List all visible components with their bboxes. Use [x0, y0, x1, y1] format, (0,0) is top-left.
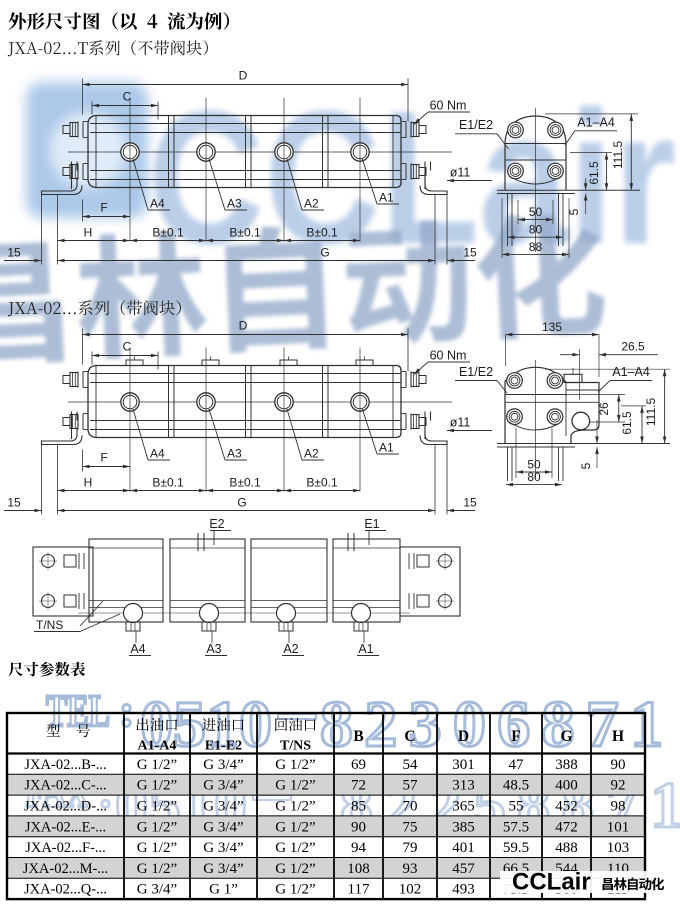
- svg-text:A3: A3: [206, 642, 221, 656]
- svg-text:111.5: 111.5: [611, 141, 625, 170]
- svg-text:G 1”: G 1”: [209, 882, 238, 898]
- svg-text:G 1/2”: G 1/2”: [275, 757, 315, 773]
- svg-text:117: 117: [348, 882, 370, 898]
- svg-text:G 3/4”: G 3/4”: [203, 861, 243, 877]
- svg-text:15: 15: [463, 496, 477, 510]
- svg-text:E1/E2: E1/E2: [459, 118, 493, 132]
- svg-text:93: 93: [403, 861, 418, 877]
- svg-text:G 3/4”: G 3/4”: [203, 757, 243, 773]
- svg-text:F: F: [100, 201, 107, 215]
- svg-text:A1: A1: [379, 441, 394, 455]
- svg-text:G: G: [237, 496, 246, 510]
- svg-text:472: 472: [555, 819, 578, 835]
- svg-text:313: 313: [452, 778, 475, 794]
- svg-text:388: 388: [555, 757, 578, 773]
- svg-text:C: C: [123, 340, 132, 354]
- svg-text:ø11: ø11: [450, 416, 471, 430]
- svg-text:A2: A2: [304, 447, 319, 461]
- svg-text:94: 94: [351, 840, 367, 856]
- svg-text:A2: A2: [304, 197, 319, 211]
- svg-text:G 1/2”: G 1/2”: [137, 840, 177, 856]
- svg-text:26: 26: [597, 402, 611, 416]
- svg-text:G: G: [320, 246, 329, 260]
- svg-text:G 1/2”: G 1/2”: [137, 778, 177, 794]
- svg-text:103: 103: [607, 840, 630, 856]
- svg-text:82306871: 82306871: [320, 688, 674, 761]
- svg-text:B±0.1: B±0.1: [229, 226, 261, 240]
- svg-text:47: 47: [509, 757, 525, 773]
- svg-text:61.5: 61.5: [587, 161, 601, 185]
- svg-text:5: 5: [579, 462, 593, 469]
- svg-text:G 1/2”: G 1/2”: [275, 778, 315, 794]
- svg-text:G 1/2”: G 1/2”: [137, 819, 177, 835]
- svg-text:G 3/4”: G 3/4”: [137, 882, 177, 898]
- svg-text:5: 5: [567, 208, 581, 215]
- svg-text:385: 385: [452, 819, 475, 835]
- svg-text:75: 75: [403, 819, 418, 835]
- svg-text:C: C: [404, 728, 415, 745]
- svg-text:G: G: [560, 728, 572, 745]
- svg-text:E1-E2: E1-E2: [205, 739, 242, 754]
- svg-text:80: 80: [527, 470, 541, 484]
- svg-text:D: D: [239, 69, 248, 83]
- svg-text:H: H: [84, 476, 93, 490]
- svg-text:A1-A4: A1-A4: [138, 739, 177, 754]
- svg-text:JXA-02...E-...: JXA-02...E-...: [25, 819, 106, 835]
- svg-text:T/NS: T/NS: [280, 739, 311, 754]
- svg-text:G 1/2”: G 1/2”: [137, 757, 177, 773]
- svg-text:92: 92: [611, 778, 626, 794]
- svg-text:F: F: [100, 451, 107, 465]
- svg-text:111.5: 111.5: [644, 398, 658, 427]
- svg-text:A1: A1: [379, 191, 394, 205]
- svg-text:ø11: ø11: [450, 166, 471, 180]
- svg-text:60 Nm: 60 Nm: [430, 99, 467, 113]
- svg-text:H: H: [84, 226, 93, 240]
- svg-text:15: 15: [7, 496, 21, 510]
- svg-text:A1: A1: [358, 642, 373, 656]
- svg-text:50: 50: [529, 205, 543, 219]
- svg-text:60 Nm: 60 Nm: [430, 349, 467, 363]
- svg-text:A1–A4: A1–A4: [577, 116, 615, 130]
- svg-text:A1–A4: A1–A4: [612, 365, 650, 379]
- svg-text:79: 79: [403, 840, 418, 856]
- svg-text:JXA-02...Q-...: JXA-02...Q-...: [24, 882, 107, 898]
- svg-text:JXA-02...B-...: JXA-02...B-...: [24, 757, 106, 773]
- svg-text:61.5: 61.5: [620, 411, 634, 435]
- svg-text:A3: A3: [227, 447, 242, 461]
- svg-text:69: 69: [351, 757, 366, 773]
- svg-text:72: 72: [351, 778, 366, 794]
- svg-text:70: 70: [403, 799, 418, 815]
- svg-text:H: H: [612, 728, 624, 745]
- svg-text:A2: A2: [283, 642, 298, 656]
- svg-text:G 3/4”: G 3/4”: [203, 799, 243, 815]
- svg-text:G 3/4”: G 3/4”: [203, 778, 243, 794]
- svg-text:80: 80: [529, 223, 543, 237]
- svg-text:A3: A3: [227, 197, 242, 211]
- svg-text:452: 452: [555, 799, 578, 815]
- svg-text:55: 55: [509, 799, 524, 815]
- svg-text:JXA-02...M-...: JXA-02...M-...: [23, 861, 108, 877]
- svg-text:G 1/2”: G 1/2”: [275, 882, 315, 898]
- svg-text:15: 15: [463, 246, 477, 260]
- svg-text::: :: [119, 685, 134, 736]
- svg-text:135: 135: [542, 320, 562, 334]
- svg-text:A4: A4: [130, 642, 145, 656]
- svg-text:54: 54: [403, 757, 419, 773]
- svg-text:G 1/2”: G 1/2”: [275, 840, 315, 856]
- svg-text:G 1/2”: G 1/2”: [275, 799, 315, 815]
- svg-text:90: 90: [351, 819, 366, 835]
- svg-text:JXA-02...F-...: JXA-02...F-...: [25, 840, 106, 856]
- svg-text:JXA-02...D-...: JXA-02...D-...: [24, 799, 107, 815]
- svg-text:90: 90: [611, 757, 626, 773]
- svg-text:B±0.1: B±0.1: [306, 226, 338, 240]
- svg-text:493: 493: [452, 882, 475, 898]
- svg-text:CCLair: CCLair: [512, 869, 591, 896]
- svg-text:301: 301: [452, 757, 475, 773]
- svg-text:E1: E1: [364, 517, 379, 531]
- svg-text:C: C: [123, 90, 132, 104]
- svg-text:98: 98: [611, 799, 626, 815]
- svg-text:B±0.1: B±0.1: [306, 476, 338, 490]
- svg-text:A4: A4: [150, 447, 165, 461]
- svg-text:57: 57: [403, 778, 419, 794]
- svg-text:B±0.1: B±0.1: [152, 476, 184, 490]
- svg-text:488: 488: [555, 840, 578, 856]
- svg-text:G 1/2”: G 1/2”: [137, 861, 177, 877]
- svg-text:401: 401: [452, 840, 475, 856]
- svg-text:B: B: [353, 728, 363, 745]
- svg-text:457: 457: [452, 861, 475, 877]
- svg-text:T/NS: T/NS: [36, 618, 63, 632]
- svg-text:JXA-02...C-...: JXA-02...C-...: [24, 778, 106, 794]
- svg-text:G 3/4”: G 3/4”: [203, 819, 243, 835]
- svg-text:B±0.1: B±0.1: [229, 476, 261, 490]
- svg-text:365: 365: [452, 799, 475, 815]
- svg-text:88: 88: [529, 240, 543, 254]
- svg-text:108: 108: [347, 861, 370, 877]
- svg-text:E1/E2: E1/E2: [459, 365, 493, 379]
- svg-text:26.5: 26.5: [621, 340, 645, 354]
- svg-text:48.5: 48.5: [503, 778, 529, 794]
- svg-text:400: 400: [555, 778, 578, 794]
- svg-text:A4: A4: [150, 197, 165, 211]
- svg-text:E2: E2: [209, 517, 224, 531]
- svg-text:G 1/2”: G 1/2”: [275, 819, 315, 835]
- svg-text:B±0.1: B±0.1: [152, 226, 184, 240]
- svg-text:D: D: [239, 319, 248, 333]
- svg-text:G 3/4”: G 3/4”: [203, 840, 243, 856]
- svg-text:G 1/2”: G 1/2”: [275, 861, 315, 877]
- svg-text:57.5: 57.5: [503, 819, 529, 835]
- svg-text:101: 101: [607, 819, 630, 835]
- svg-text:102: 102: [399, 882, 422, 898]
- svg-text:15: 15: [7, 246, 21, 260]
- svg-text:85: 85: [351, 799, 366, 815]
- svg-text:59.5: 59.5: [503, 840, 529, 856]
- svg-text:G 1/2”: G 1/2”: [137, 799, 177, 815]
- svg-text:F: F: [511, 728, 520, 745]
- svg-text:D: D: [458, 728, 469, 745]
